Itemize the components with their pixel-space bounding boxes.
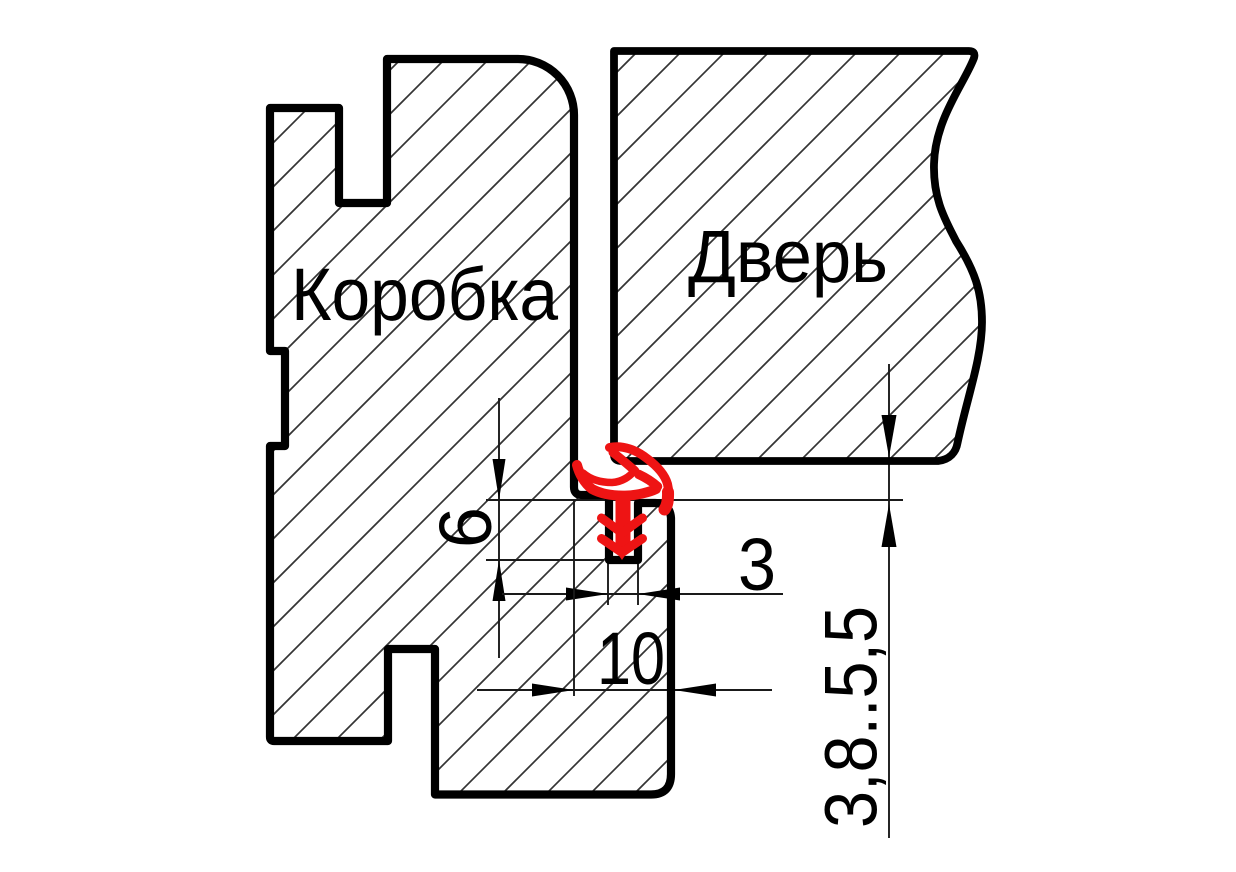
svg-text:6: 6 bbox=[424, 507, 507, 548]
svg-text:Дверь: Дверь bbox=[688, 215, 888, 298]
svg-text:3,8..5,5: 3,8..5,5 bbox=[810, 606, 893, 828]
svg-text:10: 10 bbox=[597, 617, 665, 700]
svg-text:3: 3 bbox=[738, 523, 776, 606]
svg-text:Коробка: Коробка bbox=[291, 253, 559, 336]
